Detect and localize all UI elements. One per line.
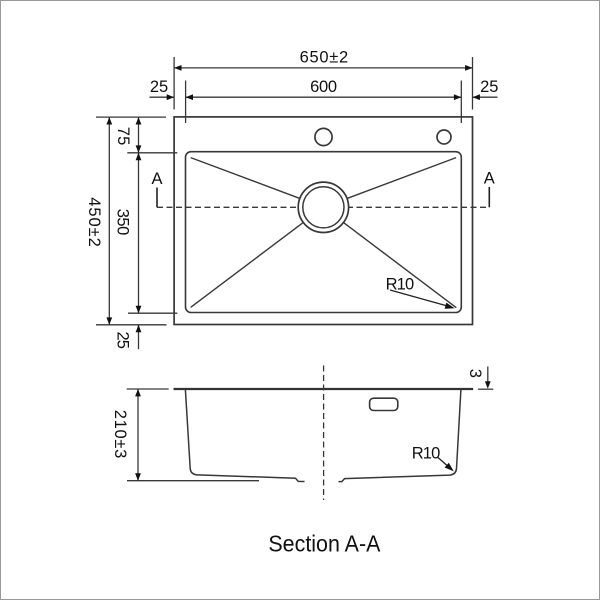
- svg-text:3: 3: [466, 369, 484, 378]
- svg-text:350: 350: [114, 209, 132, 236]
- svg-text:R10: R10: [412, 445, 441, 463]
- svg-text:Section A-A: Section A-A: [268, 531, 381, 557]
- svg-text:25: 25: [150, 78, 168, 96]
- svg-text:A: A: [151, 170, 162, 188]
- svg-text:R10: R10: [386, 275, 415, 293]
- svg-text:210±3: 210±3: [111, 410, 129, 459]
- svg-text:75: 75: [114, 127, 132, 146]
- svg-text:450±2: 450±2: [85, 197, 103, 247]
- svg-text:650±2: 650±2: [300, 49, 349, 67]
- svg-text:25: 25: [480, 78, 498, 96]
- svg-text:A: A: [484, 170, 495, 188]
- svg-text:25: 25: [114, 331, 132, 349]
- svg-text:600: 600: [310, 78, 337, 96]
